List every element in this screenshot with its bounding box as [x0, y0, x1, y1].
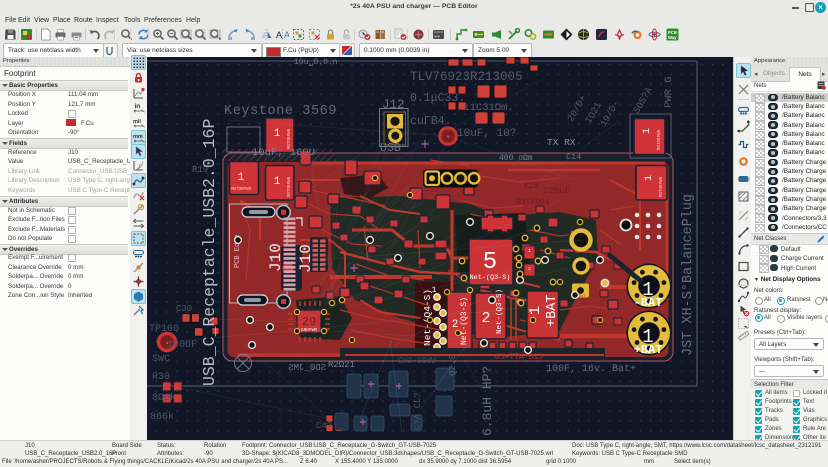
svg-text:JST XH-S°BalancePlug: JST XH-S°BalancePlug [681, 194, 696, 356]
svg-text:2: 2 [452, 319, 459, 331]
svg-text:6.8uH HP?: 6.8uH HP? [480, 366, 495, 436]
svg-text:Way: Way [668, 35, 677, 40]
svg-text:100F, 16v. Bat+: 100F, 16v. Bat+ [546, 364, 636, 375]
svg-text:USB_C_Receptacle_USB2.0_16P: USB_C_Receptacle_USB2.0_16P [200, 119, 219, 386]
svg-text:-BAT: -BAT [634, 296, 663, 310]
svg-text:400 oΩm: 400 oΩm [499, 154, 533, 163]
svg-text:MOTORPWR: MOTORPWR [660, 176, 664, 197]
svg-text:MOTORPWR: MOTORPWR [288, 176, 292, 197]
svg-text:J12: J12 [382, 98, 405, 112]
svg-text:TX RX: TX RX [547, 137, 576, 148]
svg-text:MOTORPWR: MOTORPWR [658, 129, 662, 150]
svg-text:Net-(Q3-S): Net-(Q3-S) [496, 289, 504, 334]
svg-text:1: 1 [642, 128, 653, 134]
svg-text:MOTORPWR: MOTORPWR [288, 128, 292, 149]
svg-text:C20 ATT+C0: C20 ATT+C0 [495, 353, 543, 362]
svg-text:SWC: SWC [152, 354, 170, 365]
svg-text:cuΓB4.: cuΓB4. [410, 115, 451, 128]
svg-text:10u␣0.0.n: 10u␣0.0.n [294, 58, 338, 67]
svg-text:mil: mil [133, 119, 141, 125]
svg-text:10uF, 160U: 10uF, 160U [252, 147, 315, 159]
svg-text:+BAT: +BAT [545, 295, 560, 327]
svg-text:Keystone 3569: Keystone 3569 [224, 104, 337, 119]
svg-text:MOTORPWR: MOTORPWR [231, 188, 252, 192]
svg-text:J10: J10 [267, 243, 285, 272]
svg-text:03TT001: 03TT001 [516, 198, 550, 207]
svg-text:1: 1 [238, 172, 245, 184]
svg-text:2: 2 [575, 258, 578, 264]
svg-text:TP100: TP100 [149, 324, 179, 335]
svg-text:Net-(Q3-S): Net-(Q3-S) [460, 297, 469, 345]
svg-text:1: 1 [528, 248, 531, 254]
svg-text:1: 1 [644, 175, 655, 181]
svg-text:5: 5 [483, 249, 497, 276]
svg-text:GNDPWR: GNDPWR [301, 327, 318, 333]
svg-text:1: 1 [527, 306, 544, 315]
svg-text:Q2.0: Q2.0 [448, 354, 458, 376]
svg-text:SD0_JMS: SD0_JMS [288, 363, 326, 373]
svg-text:TLV76923R213005: TLV76923R213005 [410, 70, 523, 84]
svg-text:2: 2 [481, 310, 490, 327]
svg-text:R2Ω21: R2Ω21 [328, 360, 355, 370]
svg-text:A: A [276, 30, 282, 40]
svg-text:10uF, 10?: 10uF, 10? [457, 128, 516, 140]
svg-text:C30: C30 [176, 304, 192, 314]
svg-text:mm: mm [133, 134, 143, 140]
svg-text:1: 1 [274, 176, 281, 188]
svg-text:866k: 866k [150, 411, 174, 423]
svg-text:K25: K25 [524, 182, 539, 191]
svg-text:+BAT: +BAT [634, 343, 663, 357]
svg-text:C4?: C4? [316, 421, 332, 431]
svg-text:8Ω6k: 8Ω6k [152, 392, 176, 404]
svg-text:220uF: 220uF [543, 186, 570, 196]
svg-text:R30: R30 [152, 372, 170, 383]
svg-text:Wb33 GW2: Wb33 GW2 [397, 357, 436, 366]
svg-text:1: 1 [274, 128, 281, 140]
svg-text:C14: C14 [566, 152, 581, 162]
svg-text:in: in [135, 103, 141, 110]
svg-text:A: A [284, 30, 289, 40]
svg-text:PWR G: PWR G [663, 76, 675, 108]
svg-text:Net-(Q3-S): Net-(Q3-S) [470, 274, 511, 282]
svg-text:C?Λ CL?: C?Λ CL? [413, 392, 423, 430]
svg-text:USB: USB [380, 142, 401, 155]
svg-text:29: 29 [302, 315, 316, 329]
